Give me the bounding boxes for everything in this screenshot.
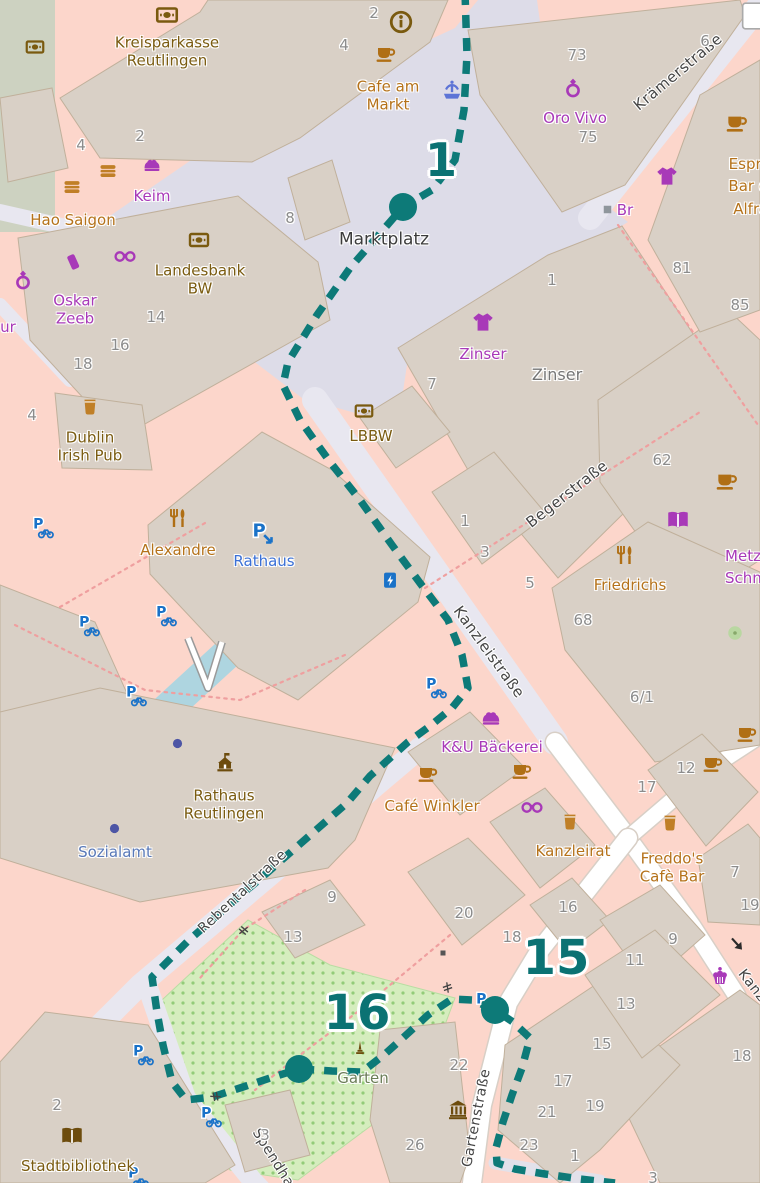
map-label: 6/1 <box>630 688 654 706</box>
map-label: LBBW <box>349 427 392 445</box>
map-label: Rathaus Reutlingen <box>184 787 264 824</box>
waypoint-number-16: 16 <box>324 985 391 1041</box>
map-label: 68 <box>573 611 592 629</box>
map-label: Café Winkler <box>384 797 479 815</box>
map-label: 1 <box>460 512 470 530</box>
map-label: Oskar Zeeb <box>53 292 96 329</box>
map-label: 73 <box>567 46 586 64</box>
map-label: 16 <box>110 336 129 354</box>
map-label: Kanzleirat <box>536 842 611 860</box>
map-label: Zinser <box>459 345 506 363</box>
map-label: 23 <box>519 1136 538 1154</box>
building <box>0 88 68 182</box>
map-label: 62 <box>652 451 671 469</box>
map-label: 26 <box>405 1136 424 1154</box>
map-label: Rathaus <box>233 552 294 570</box>
map-label: Espresso <box>729 155 760 173</box>
map-label: 2 <box>369 4 379 22</box>
map-label: 2 <box>52 1096 62 1114</box>
map-label: 4 <box>339 36 349 54</box>
map-label: 15 <box>592 1035 611 1053</box>
map-label: 20 <box>454 904 473 922</box>
map-label: 1 <box>570 1147 580 1165</box>
map-canvas[interactable]: P P P <box>0 0 760 1183</box>
map-label: 6 <box>700 32 710 50</box>
waypoint-marker-15[interactable] <box>481 996 509 1024</box>
map-label: 75 <box>578 128 597 146</box>
map-label: Freddo's Cafè Bar <box>640 850 705 887</box>
map-label: Bar da <box>728 177 760 195</box>
map-label: 9 <box>668 930 678 948</box>
map-label: 8 <box>285 209 295 227</box>
map-label: 3 <box>648 1169 658 1183</box>
map-label: 7 <box>427 375 437 393</box>
map-label: Friedrichs <box>594 576 667 594</box>
map-label: Br <box>617 201 633 219</box>
building <box>490 788 595 888</box>
map-label: 85 <box>730 296 749 314</box>
map-label: 17 <box>637 778 656 796</box>
map-label: 13 <box>283 928 302 946</box>
map-label: Alfredo <box>733 200 760 218</box>
building <box>370 1022 470 1183</box>
map-label: 9 <box>327 888 337 906</box>
map-label: 22 <box>449 1056 468 1074</box>
map-label: Hao Saigon <box>30 211 116 229</box>
map-label: Oro Vivo <box>543 109 607 127</box>
map-label: Keim <box>133 187 170 205</box>
map-label: 13 <box>616 995 635 1013</box>
map-label: Alexandre <box>140 541 216 559</box>
map-label: 12 <box>676 759 695 777</box>
map-label: 21 <box>537 1103 556 1121</box>
map-label: 19 <box>740 896 759 914</box>
map-label: Stadtbibliothek <box>21 1157 135 1175</box>
map-label: ur <box>0 318 16 336</box>
map-label: 16 <box>558 898 577 916</box>
waypoint-marker-16[interactable] <box>285 1055 313 1083</box>
map-label: 4 <box>76 136 86 154</box>
map-label: 1 <box>547 271 557 289</box>
map-label: 19 <box>585 1097 604 1115</box>
map-label: Schnitzer <box>725 569 760 587</box>
map-label: 81 <box>672 259 691 277</box>
map-label: Garten <box>337 1069 389 1087</box>
map-label: Landesbank BW <box>155 262 246 299</box>
map-label: 11 <box>625 951 644 969</box>
map-label: 14 <box>146 308 165 326</box>
map-label: 18 <box>502 928 521 946</box>
map-label: 4 <box>27 406 37 424</box>
map-label: 17 <box>553 1072 572 1090</box>
map-label: 3 <box>260 1126 270 1144</box>
map-label: 7 <box>730 863 740 881</box>
map-label: 18 <box>732 1047 751 1065</box>
map-label: Kreisparkasse Reutlingen <box>115 34 219 71</box>
map-label: 3 <box>480 543 490 561</box>
map-label: Cafe am Markt <box>357 78 420 115</box>
map-label: Metzgerei <box>725 547 760 565</box>
map-label: 2 <box>135 127 145 145</box>
map-label: 5 <box>525 574 535 592</box>
map-label: K&U Bäckerei <box>441 738 543 756</box>
waypoint-number-15: 15 <box>523 930 590 986</box>
map-label: Zinser <box>532 365 582 385</box>
map-label: Marktplatz <box>339 230 429 251</box>
map-label: Dublin Irish Pub <box>58 429 123 466</box>
map-label: 18 <box>73 355 92 373</box>
waypoint-marker-1[interactable] <box>389 193 417 221</box>
waypoint-number-1: 1 <box>425 133 457 187</box>
map-label: Sozialamt <box>78 843 152 861</box>
